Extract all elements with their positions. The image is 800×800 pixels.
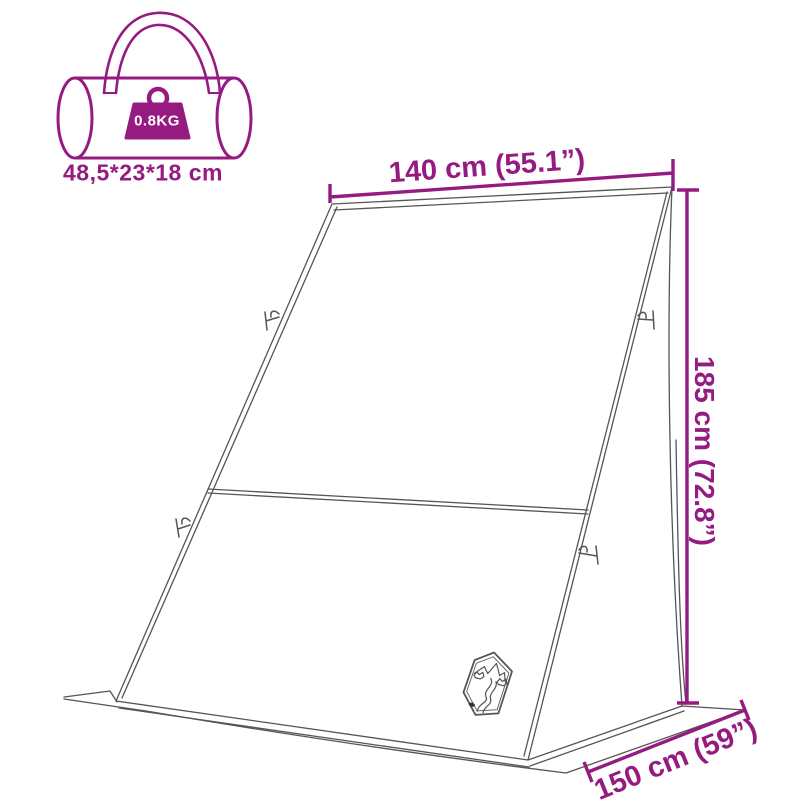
diagram-canvas xyxy=(0,0,800,800)
toggle-pin-icon xyxy=(638,311,654,329)
dimension-lines xyxy=(330,159,749,782)
carry-bag-icon xyxy=(58,13,251,158)
bag-size-label: 48,5*23*18 cm xyxy=(63,162,223,185)
bush-glyph xyxy=(473,670,484,679)
panel-seam xyxy=(208,489,588,514)
ground-skirt xyxy=(64,691,146,711)
bush-glyph xyxy=(496,677,507,686)
toggle-pin-icon xyxy=(265,311,279,330)
front-panel xyxy=(116,187,672,760)
windscreen-tent-outline xyxy=(64,187,745,773)
trail-glyph xyxy=(477,677,497,714)
product-dimension-diagram: 0.8KG 48,5*23*18 cm 140 cm (55.1”) 185 c… xyxy=(0,0,800,800)
height-dimension-label: 185 cm (72.8”) xyxy=(690,356,718,546)
mountain-trail-shield-logo xyxy=(459,648,515,721)
toggle-pin-icon xyxy=(579,546,598,564)
bag-weight-label: 0.8KG xyxy=(134,114,180,129)
side-panel xyxy=(528,187,682,760)
bag-handle-icon xyxy=(116,25,209,93)
